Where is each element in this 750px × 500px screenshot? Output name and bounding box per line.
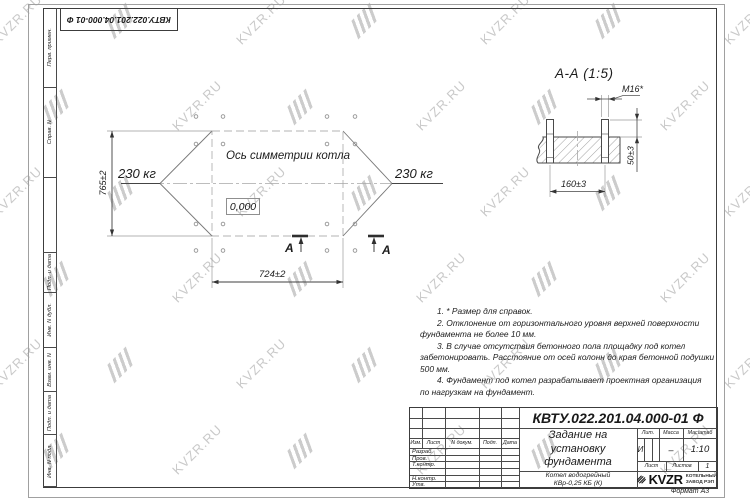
- title-block-gridline: [644, 438, 645, 461]
- lit-value: И: [637, 438, 644, 461]
- col-header-data: Дата: [501, 438, 519, 448]
- section-spacing-dimension: 160±3: [561, 179, 586, 189]
- brand-subtitle-line: ЗАВОД РЭП: [686, 480, 717, 485]
- note-line: фундамента не более 10 мм.: [420, 329, 720, 341]
- section-cut-marks: [292, 236, 384, 252]
- note-line: забетонировать. Расстояние от осей колон…: [420, 352, 720, 364]
- plan-level-mark: 0,000: [230, 201, 256, 213]
- title-block-gridline: [410, 418, 519, 419]
- col-header-podp: Подп.: [479, 438, 501, 448]
- format-label: Формат А3: [655, 488, 725, 495]
- product-name: Котел водогрейный КВр-0,25 КБ (К): [519, 471, 637, 488]
- mass-header: Масса: [659, 428, 683, 438]
- sheets-label: Листов: [666, 461, 698, 471]
- col-header-list: Лист: [422, 438, 445, 448]
- title-block-gridline: [410, 468, 519, 469]
- title-block: Изм. Лист N докум. Подп. Дата Разраб. Пр…: [409, 407, 718, 489]
- document-title: Задание на установку фундамента: [519, 428, 637, 471]
- section-protrusion-dimension: 50±3: [625, 139, 636, 173]
- section-letter-right: А: [382, 243, 391, 257]
- note-line: по нагрузкам на фундамент.: [420, 387, 720, 399]
- document-title-line: установку: [551, 443, 606, 457]
- plan-level-mark-box: 0,000: [226, 198, 260, 215]
- sheets-value: 1: [698, 461, 717, 471]
- note-line: 500 мм.: [420, 364, 720, 376]
- brand-name: KVZR: [649, 472, 683, 487]
- mass-value: –: [659, 438, 683, 461]
- sig-row-tkontr: Т.контр.: [412, 462, 435, 468]
- sig-row-utv: Утв.: [412, 482, 425, 488]
- col-header-ndokum: N докум.: [445, 438, 479, 448]
- product-name-line: КВр-0,25 КБ (К): [554, 480, 603, 488]
- document-title-line: фундамента: [544, 456, 612, 470]
- kvzr-logo-icon: [637, 473, 646, 486]
- scale-header: Масштаб: [683, 428, 717, 438]
- sig-row-prov: Пров.: [412, 456, 427, 462]
- scale-value: 1:10: [683, 438, 717, 461]
- drawing-sheet: KVZR.RUKVZR.RUKVZR.RUKVZR.RUKVZR.RUKVZR.…: [0, 0, 750, 500]
- col-header-izm: Изм.: [410, 438, 422, 448]
- title-block-gridline: [652, 438, 653, 461]
- section-title: А-А (1:5): [555, 66, 614, 81]
- plan-load-left-label: 230 кг: [118, 166, 156, 181]
- title-block-doc-number: КВТУ.022.201.04.000-01 Ф: [519, 408, 717, 428]
- sig-row-razrab: Разраб.: [412, 449, 433, 455]
- section-thread-label: M16*: [622, 84, 643, 94]
- note-line: 2. Отклонение от горизонтального уровня …: [420, 318, 720, 330]
- foundation-plan-lines: [107, 115, 443, 288]
- plan-load-right-label: 230 кг: [395, 166, 433, 181]
- document-title-line: Задание на: [549, 429, 608, 443]
- technical-notes: 1. * Размер для справок. 2. Отклонение о…: [420, 306, 720, 398]
- plan-width-dimension: 724±2: [259, 269, 285, 280]
- plan-height-dimension: 765±2: [97, 164, 109, 202]
- sheet-label: Лист: [637, 461, 666, 471]
- sig-row-nkontr: Н.контр.: [412, 476, 437, 482]
- note-line: 3. В случае отсутствия бетонного пола пл…: [420, 341, 720, 353]
- section-letter-left: А: [285, 241, 294, 255]
- plan-symmetry-axis-label: Ось симметрии котла: [226, 150, 350, 162]
- product-name-line: Котел водогрейный: [546, 472, 611, 480]
- note-line: 1. * Размер для справок.: [420, 306, 720, 318]
- note-line: 4. Фундамент под котел разрабатывает про…: [420, 375, 720, 387]
- company-cell: KVZR КОТЕЛЬНЫЙ ЗАВОД РЭП: [637, 471, 717, 488]
- brand-subtitle: КОТЕЛЬНЫЙ ЗАВОД РЭП: [686, 474, 717, 485]
- lit-header: Лит.: [637, 428, 659, 438]
